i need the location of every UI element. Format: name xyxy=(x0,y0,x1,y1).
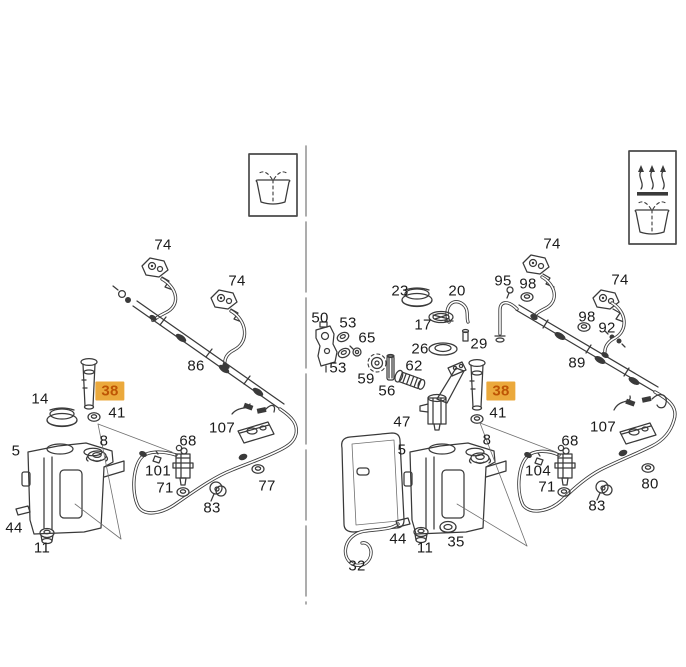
part-label-right-17[interactable]: 17 xyxy=(414,318,431,333)
part-label-right-62[interactable]: 62 xyxy=(405,359,422,374)
part-label-right-50[interactable]: 50 xyxy=(311,311,328,326)
part-label-right-74[interactable]: 74 xyxy=(543,237,560,252)
part-label-left-86[interactable]: 86 xyxy=(187,359,204,374)
part-label-right-92[interactable]: 92 xyxy=(598,321,615,336)
part-label-right-56[interactable]: 56 xyxy=(378,384,395,399)
part-label-left-107[interactable]: 107 xyxy=(209,421,235,436)
part-label-left-74[interactable]: 74 xyxy=(154,238,171,253)
part-label-left-83[interactable]: 83 xyxy=(203,501,220,516)
part-label-right-71[interactable]: 71 xyxy=(538,480,555,495)
part-label-highlighted-left-38[interactable]: 38 xyxy=(95,382,124,401)
part-label-right-8[interactable]: 8 xyxy=(483,433,492,448)
part-label-left-44[interactable]: 44 xyxy=(5,521,22,536)
part-label-right-53[interactable]: 53 xyxy=(329,361,346,376)
part-label-left-14[interactable]: 14 xyxy=(31,392,48,407)
part-label-right-23[interactable]: 23 xyxy=(391,284,408,299)
part-label-right-5[interactable]: 5 xyxy=(398,443,407,458)
part-label-right-11[interactable]: 11 xyxy=(417,541,433,556)
label-layer: 7474861438418510768101717783441174749598… xyxy=(0,0,686,667)
part-label-highlighted-right-38[interactable]: 38 xyxy=(486,382,515,401)
part-label-right-80[interactable]: 80 xyxy=(641,477,658,492)
part-label-left-71[interactable]: 71 xyxy=(156,481,173,496)
part-label-right-35[interactable]: 35 xyxy=(447,535,464,550)
part-label-left-74[interactable]: 74 xyxy=(228,274,245,289)
part-label-left-101[interactable]: 101 xyxy=(145,464,171,479)
part-label-left-5[interactable]: 5 xyxy=(12,444,21,459)
part-label-right-107[interactable]: 107 xyxy=(590,420,616,435)
part-label-right-41[interactable]: 41 xyxy=(489,406,506,421)
part-label-right-20[interactable]: 20 xyxy=(448,284,465,299)
part-label-right-98[interactable]: 98 xyxy=(578,310,595,325)
part-label-left-68[interactable]: 68 xyxy=(179,434,196,449)
part-label-right-32[interactable]: 32 xyxy=(348,559,365,574)
part-label-right-47[interactable]: 47 xyxy=(393,415,410,430)
part-label-right-95[interactable]: 95 xyxy=(494,274,511,289)
part-label-right-59[interactable]: 59 xyxy=(357,372,374,387)
part-label-right-83[interactable]: 83 xyxy=(588,499,605,514)
part-label-right-104[interactable]: 104 xyxy=(525,464,551,479)
part-label-right-89[interactable]: 89 xyxy=(568,356,585,371)
part-label-right-65[interactable]: 65 xyxy=(358,331,375,346)
part-label-right-53[interactable]: 53 xyxy=(339,316,356,331)
part-label-left-77[interactable]: 77 xyxy=(258,479,275,494)
part-label-right-74[interactable]: 74 xyxy=(611,273,628,288)
part-label-right-98[interactable]: 98 xyxy=(519,277,536,292)
part-label-right-44[interactable]: 44 xyxy=(389,532,406,547)
parts-diagram-page: 7474861438418510768101717783441174749598… xyxy=(0,0,686,667)
part-label-right-68[interactable]: 68 xyxy=(561,434,578,449)
part-label-left-11[interactable]: 11 xyxy=(34,541,50,556)
part-label-left-8[interactable]: 8 xyxy=(100,434,109,449)
part-label-right-26[interactable]: 26 xyxy=(411,342,428,357)
part-label-left-41[interactable]: 41 xyxy=(108,406,125,421)
part-label-right-29[interactable]: 29 xyxy=(470,337,487,352)
